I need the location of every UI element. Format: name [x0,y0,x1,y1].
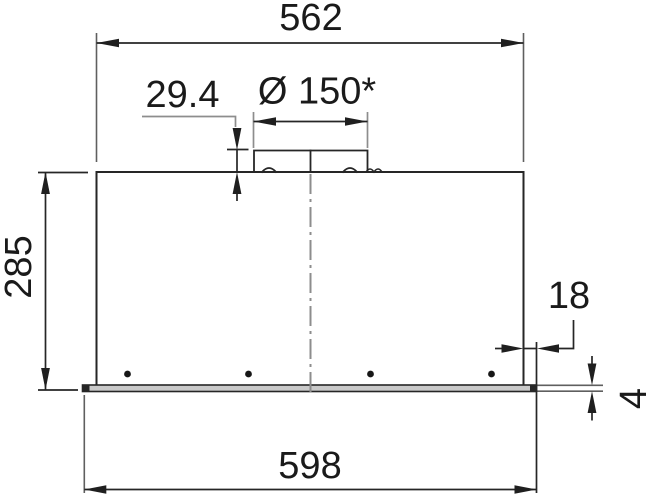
arrowhead-right-icon [515,485,537,494]
leader-line [142,117,236,128]
dim-label-rim-thickness: 4 [613,388,650,409]
mounting-hole [124,371,131,378]
leader-line [559,320,574,349]
arrowhead-down-icon [588,364,597,386]
mounting-hole [245,371,252,378]
dim-duct-diameter: Ø 150* [254,71,377,149]
dim-label-duct-diameter: Ø 150* [258,71,377,113]
arrowhead-left-icon [254,117,277,126]
arrowhead-left-icon [84,485,106,494]
arrowhead-up-icon [41,172,50,194]
panel-end-right [530,385,537,392]
arrowhead-left-icon [537,344,559,353]
dim-label-rim-offset: 18 [548,275,590,317]
arrowhead-down-icon [41,368,50,390]
hood-dimension-drawing: 562 Ø 150* 29.4 285 18 [0,0,650,501]
arrowhead-left-icon [97,39,120,48]
dim-rim-offset: 18 [495,275,590,493]
dim-label-collar-height: 29.4 [146,74,220,116]
arrowhead-right-icon [502,344,524,353]
arrowhead-up-icon [233,172,242,194]
bottom-panel [83,385,604,392]
arrowhead-down-icon [233,128,242,150]
arrowhead-right-icon [345,117,368,126]
dim-collar-height: 29.4 [142,74,249,201]
dim-label-overall-width: 562 [279,0,342,39]
arrowhead-up-icon [588,391,597,413]
dim-panel-width: 598 [84,395,536,494]
dim-height: 285 [0,172,88,390]
dim-rim-thickness: 4 [588,356,650,421]
mounting-hole [367,371,374,378]
mounting-hole [488,371,495,378]
panel-end-left [83,385,90,392]
duct-collar [254,151,382,173]
dim-label-height: 285 [0,235,40,298]
arrowhead-right-icon [501,39,524,48]
dimension-drawing-canvas: 562 Ø 150* 29.4 285 18 [0,0,650,501]
dim-label-panel-width: 598 [278,445,341,487]
